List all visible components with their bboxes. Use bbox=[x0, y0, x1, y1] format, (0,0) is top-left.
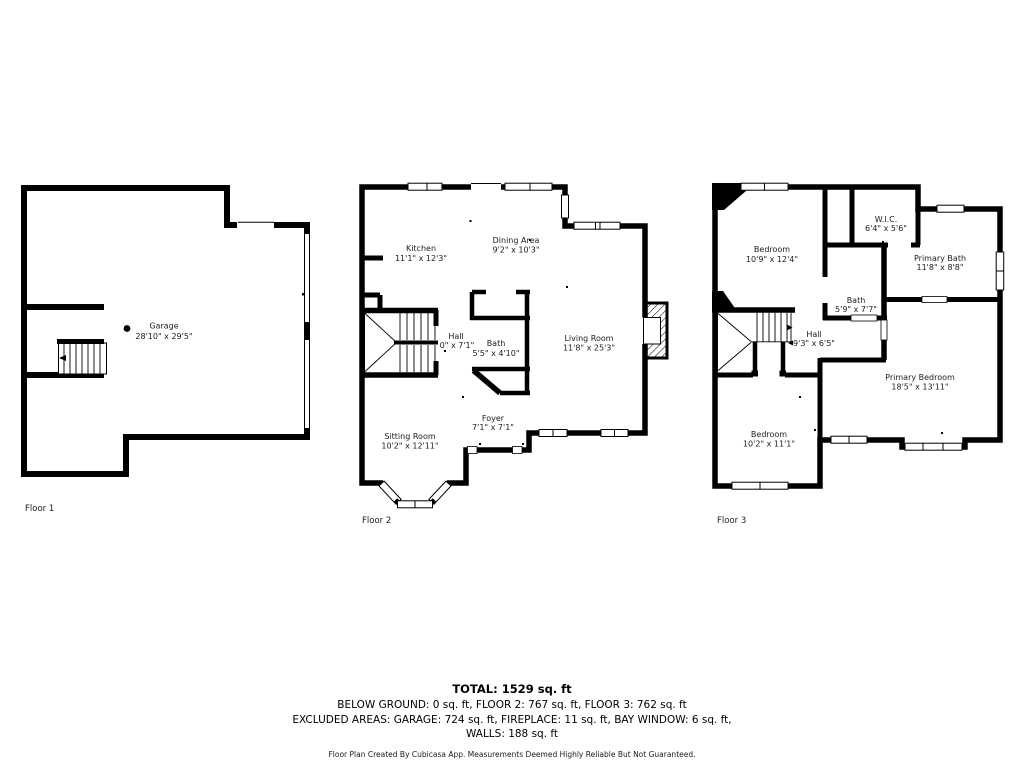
floor-plan-canvas: Garage 28'10" x 29'5" Floor 1 bbox=[0, 0, 1024, 768]
room-dims-primary-bath: 11'8" x 8'8" bbox=[916, 263, 963, 272]
room-label-foyer: Foyer bbox=[482, 414, 505, 423]
floor-1-plan: Garage 28'10" x 29'5" Floor 1 bbox=[24, 188, 312, 514]
room-dims-bath-f2: 5'5" x 4'10" bbox=[472, 349, 519, 358]
disclaimer-text: Floor Plan Created By Cubicasa App. Meas… bbox=[0, 750, 1024, 759]
room-dims-living-room: 11'8" x 25'3" bbox=[563, 344, 615, 353]
floor-2-label: Floor 2 bbox=[362, 516, 391, 526]
floor2-kitchen-stubs bbox=[362, 258, 383, 311]
door-opening bbox=[922, 297, 947, 303]
room-label-dining-area: Dining Area bbox=[493, 236, 540, 245]
room-label-hall-f2: Hall bbox=[448, 332, 463, 341]
fireplace bbox=[644, 303, 668, 358]
floor3-wic-walls bbox=[825, 187, 918, 247]
floor-3-plan: Bedroom 10'9" x 12'4" W.I.C. 6'4" x 5'6"… bbox=[712, 183, 1004, 526]
room-dims-dining-area: 9'2" x 10'3" bbox=[492, 246, 539, 255]
floor-3-label: Floor 3 bbox=[717, 516, 746, 526]
door-opening bbox=[851, 315, 877, 321]
room-label-living-room: Living Room bbox=[564, 334, 613, 343]
measure-dot bbox=[302, 293, 305, 296]
room-label-bath-f2: Bath bbox=[487, 339, 506, 348]
room-dims-kitchen: 11'1" x 12'3" bbox=[395, 254, 447, 263]
room-dims-bedroom-top: 10'9" x 12'4" bbox=[746, 255, 798, 264]
room-label-wic: W.I.C. bbox=[875, 215, 898, 224]
stairs-floor2 bbox=[365, 313, 439, 372]
door-jamb bbox=[752, 371, 759, 377]
room-label-hall-f3: Hall bbox=[806, 330, 821, 339]
floor3-hall-walls bbox=[820, 358, 886, 486]
bay-window bbox=[379, 479, 451, 508]
door-jamb bbox=[780, 371, 787, 377]
room-label-kitchen: Kitchen bbox=[406, 244, 436, 253]
stair-arrow-icon bbox=[787, 325, 793, 331]
room-label-garage: Garage bbox=[149, 322, 178, 331]
floor1-outer-walls bbox=[24, 188, 307, 474]
room-label-bedroom-bottom: Bedroom bbox=[751, 430, 787, 439]
room-label-sitting-room: Sitting Room bbox=[384, 432, 435, 441]
excluded-areas-text: EXCLUDED AREAS: GARAGE: 724 sq. ft, FIRE… bbox=[0, 713, 1024, 728]
room-label-bedroom-top: Bedroom bbox=[754, 245, 790, 254]
room-dims-hall-f2: 0" x 7'1" bbox=[440, 341, 475, 350]
floor-2-plan: Kitchen 11'1" x 12'3" Dining Area 9'2" x… bbox=[360, 182, 667, 526]
room-dims-foyer: 7'1" x 7'1" bbox=[472, 423, 514, 432]
room-label-primary-bedroom: Primary Bedroom bbox=[885, 373, 955, 382]
room-dims-hall-f3: 9'3" x 6'5" bbox=[793, 339, 835, 348]
area-summary: TOTAL: 1529 sq. ft BELOW GROUND: 0 sq. f… bbox=[0, 682, 1024, 759]
stairs-floor1 bbox=[57, 342, 107, 375]
room-dims-primary-bedroom: 18'5" x 13'11" bbox=[891, 383, 948, 392]
room-dims-bedroom-bottom: 10'2" x 11'1" bbox=[743, 440, 795, 449]
room-label-bath-f3: Bath bbox=[847, 296, 866, 305]
floor2-angled-wall bbox=[474, 371, 501, 394]
door-opening bbox=[881, 320, 887, 340]
room-dims-wic: 6'4" x 5'6" bbox=[865, 224, 907, 233]
garage-dot bbox=[124, 325, 131, 332]
floor-plans-svg: Garage 28'10" x 29'5" Floor 1 bbox=[0, 0, 1024, 768]
walls-area-text: WALLS: 188 sq. ft bbox=[0, 727, 1024, 742]
floor-areas-text: BELOW GROUND: 0 sq. ft, FLOOR 2: 767 sq.… bbox=[0, 698, 1024, 713]
total-area-text: TOTAL: 1529 sq. ft bbox=[0, 682, 1024, 696]
room-dims-bath-f3: 5'9" x 7'7" bbox=[835, 305, 877, 314]
room-label-primary-bath: Primary Bath bbox=[914, 254, 966, 263]
room-dims-sitting-room: 10'2" x 12'11" bbox=[381, 442, 438, 451]
room-dims-garage: 28'10" x 29'5" bbox=[135, 332, 192, 341]
floor3-closet-walls bbox=[755, 342, 783, 373]
floor-1-label: Floor 1 bbox=[25, 504, 54, 514]
